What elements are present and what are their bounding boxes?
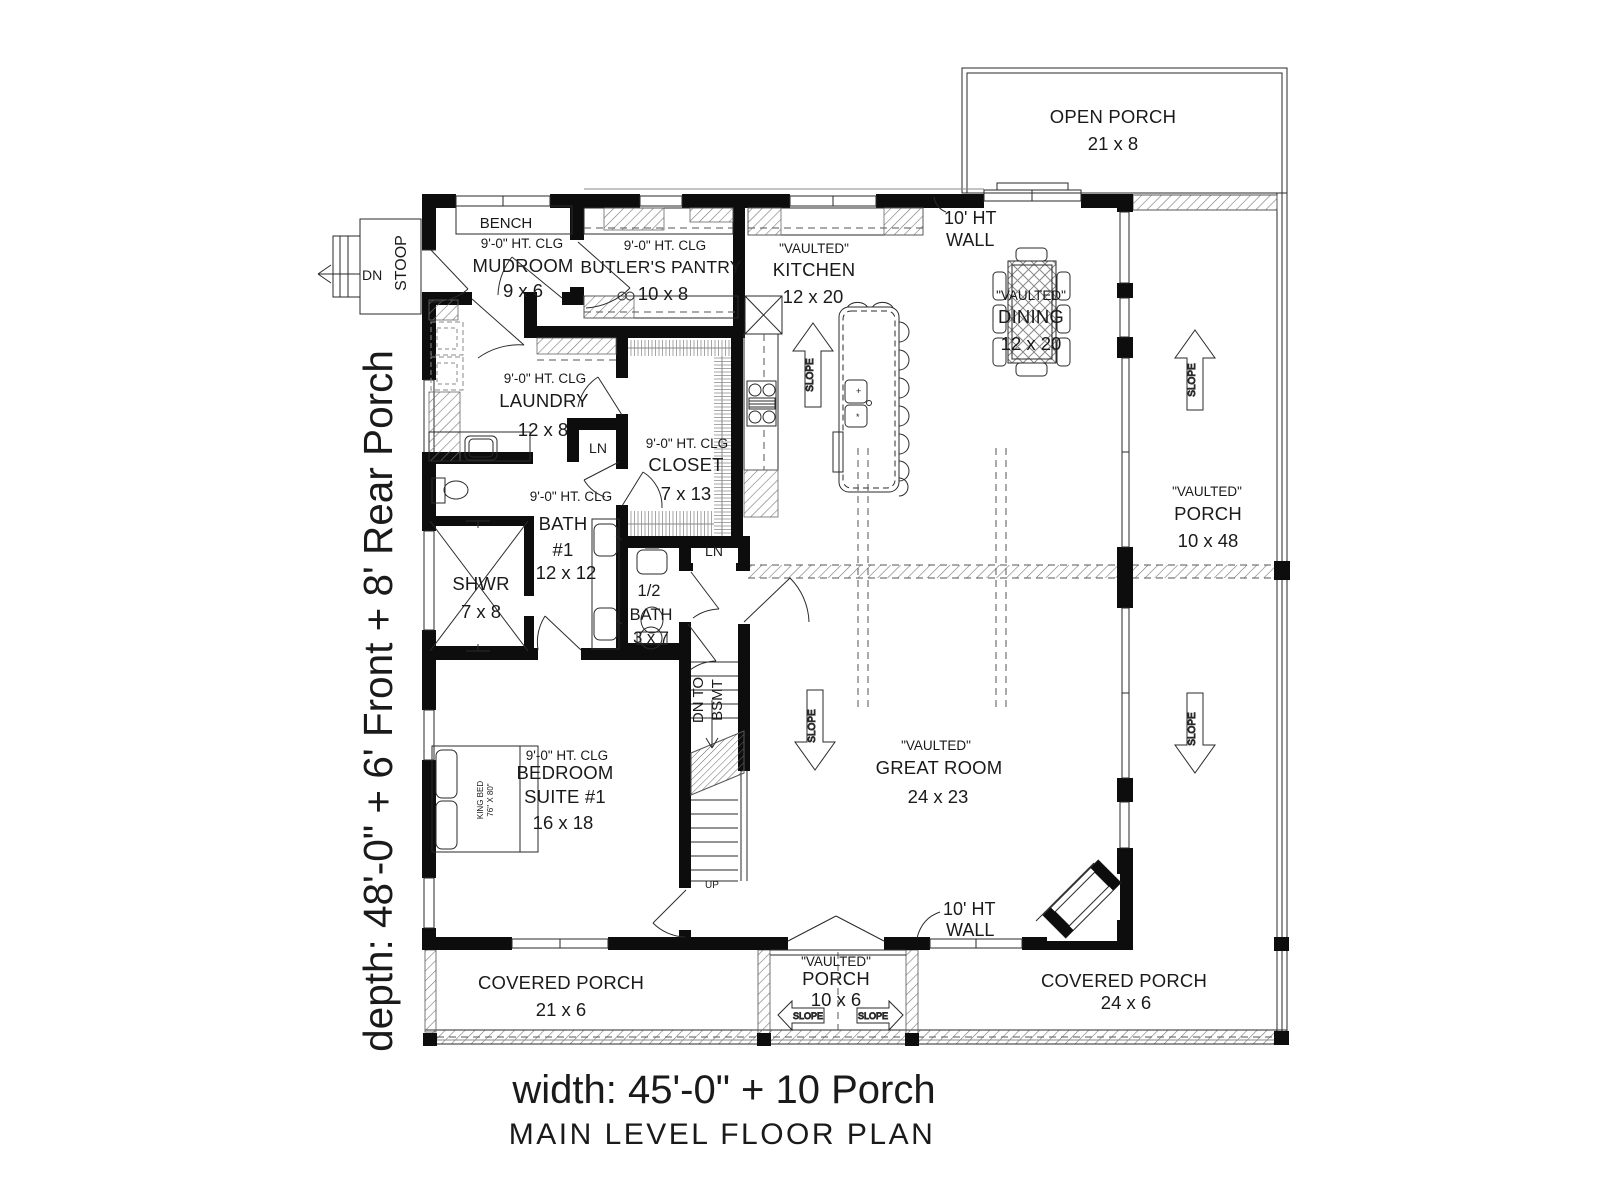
svg-text:10' HT: 10' HT	[943, 899, 995, 919]
svg-text:*: *	[856, 412, 860, 422]
svg-text:9'-0" HT. CLG: 9'-0" HT. CLG	[530, 489, 612, 504]
svg-text:KING BED: KING BED	[476, 781, 485, 819]
svg-text:KITCHEN: KITCHEN	[773, 259, 856, 280]
svg-text:24 x 23: 24 x 23	[908, 786, 969, 807]
svg-text:SLOPE: SLOPE	[805, 358, 816, 392]
svg-text:"VAULTED": "VAULTED"	[901, 738, 971, 753]
svg-text:10 x 48: 10 x 48	[1178, 530, 1239, 551]
svg-text:WALL: WALL	[946, 230, 994, 250]
svg-text:+: +	[856, 386, 861, 396]
svg-text:DN TO: DN TO	[690, 677, 707, 723]
svg-text:10 x 6: 10 x 6	[811, 989, 861, 1010]
svg-text:16 x 18: 16 x 18	[533, 812, 594, 833]
svg-text:SLOPE: SLOPE	[1187, 712, 1198, 746]
svg-text:12 x 20: 12 x 20	[1001, 333, 1062, 354]
svg-text:SHWR: SHWR	[452, 573, 509, 594]
svg-text:LN: LN	[589, 440, 607, 456]
svg-text:COVERED PORCH: COVERED PORCH	[478, 972, 644, 993]
svg-text:1/2: 1/2	[638, 582, 661, 600]
svg-text:24 x 6: 24 x 6	[1101, 992, 1151, 1013]
svg-text:9'-0" HT. CLG: 9'-0" HT. CLG	[646, 436, 728, 451]
svg-text:OPEN PORCH: OPEN PORCH	[1050, 106, 1176, 127]
svg-text:SLOPE: SLOPE	[793, 1011, 823, 1021]
svg-text:STOOP: STOOP	[393, 235, 410, 291]
svg-text:CLOSET: CLOSET	[648, 454, 723, 475]
svg-text:10 x 8: 10 x 8	[638, 283, 688, 304]
svg-text:7 x 13: 7 x 13	[661, 483, 711, 504]
svg-text:LAUNDRY: LAUNDRY	[499, 390, 588, 411]
svg-text:BUTLER'S PANTRY: BUTLER'S PANTRY	[580, 257, 741, 277]
svg-text:WALL: WALL	[946, 920, 994, 940]
svg-text:BATH: BATH	[630, 606, 673, 624]
svg-text:SLOPE: SLOPE	[1187, 363, 1198, 397]
svg-text:"VAULTED": "VAULTED"	[996, 288, 1066, 303]
svg-text:SLOPE: SLOPE	[807, 709, 818, 743]
svg-text:DN: DN	[362, 267, 382, 283]
svg-text:7 x 8: 7 x 8	[461, 601, 501, 622]
svg-text:21 x 6: 21 x 6	[536, 999, 586, 1020]
svg-text:LN: LN	[705, 543, 723, 559]
svg-text:9'-0" HT. CLG: 9'-0" HT. CLG	[624, 238, 706, 253]
svg-text:9'-0" HT. CLG: 9'-0" HT. CLG	[504, 371, 586, 386]
svg-text:PORCH: PORCH	[802, 968, 870, 989]
svg-text:MAIN LEVEL FLOOR PLAN: MAIN LEVEL FLOOR PLAN	[509, 1118, 936, 1151]
svg-text:9 x 6: 9 x 6	[503, 280, 543, 301]
svg-text:COVERED PORCH: COVERED PORCH	[1041, 970, 1207, 991]
svg-text:BATH: BATH	[539, 513, 588, 534]
svg-text:9'-0" HT. CLG: 9'-0" HT. CLG	[481, 236, 563, 251]
svg-text:BENCH: BENCH	[480, 215, 533, 232]
svg-text:12 x 20: 12 x 20	[783, 286, 844, 307]
svg-text:"VAULTED": "VAULTED"	[801, 954, 871, 969]
svg-text:width: 45'-0" + 10 Porch: width: 45'-0" + 10 Porch	[511, 1068, 935, 1112]
svg-text:depth: 48'-0" + 6' Front + 8': depth: 48'-0" + 6' Front + 8' Rear Porch	[355, 350, 401, 1052]
svg-text:12 x 8: 12 x 8	[518, 419, 568, 440]
svg-text:10' HT: 10' HT	[944, 208, 996, 228]
svg-text:BEDROOM: BEDROOM	[517, 762, 614, 783]
svg-text:DINING: DINING	[998, 306, 1064, 327]
svg-text:9'-0" HT. CLG: 9'-0" HT. CLG	[526, 748, 608, 763]
svg-text:21 x 8: 21 x 8	[1088, 133, 1138, 154]
svg-text:UP: UP	[705, 880, 719, 891]
svg-text:PORCH: PORCH	[1174, 503, 1242, 524]
svg-text:SLOPE: SLOPE	[858, 1011, 888, 1021]
svg-text:"VAULTED": "VAULTED"	[779, 241, 849, 256]
svg-text:3 x 7: 3 x 7	[633, 629, 669, 647]
svg-text:#1: #1	[553, 539, 574, 560]
svg-text:76" X 80": 76" X 80"	[486, 783, 495, 816]
svg-text:GREAT ROOM: GREAT ROOM	[876, 757, 1003, 778]
svg-text:SUITE #1: SUITE #1	[524, 786, 606, 807]
svg-text:12 x 12: 12 x 12	[536, 562, 597, 583]
svg-text:"VAULTED": "VAULTED"	[1172, 484, 1242, 499]
